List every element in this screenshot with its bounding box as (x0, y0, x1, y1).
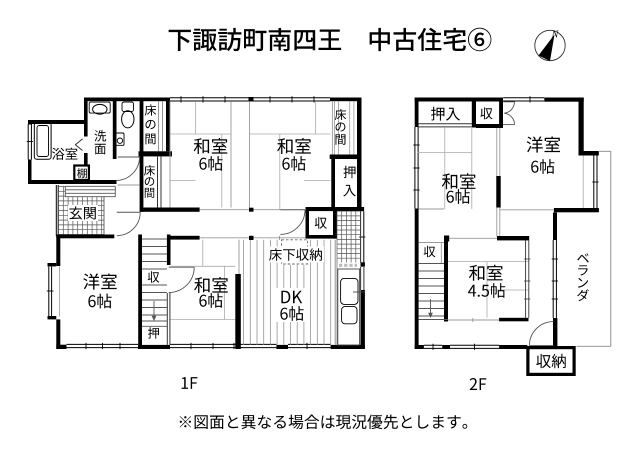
svg-text:N: N (551, 30, 560, 41)
